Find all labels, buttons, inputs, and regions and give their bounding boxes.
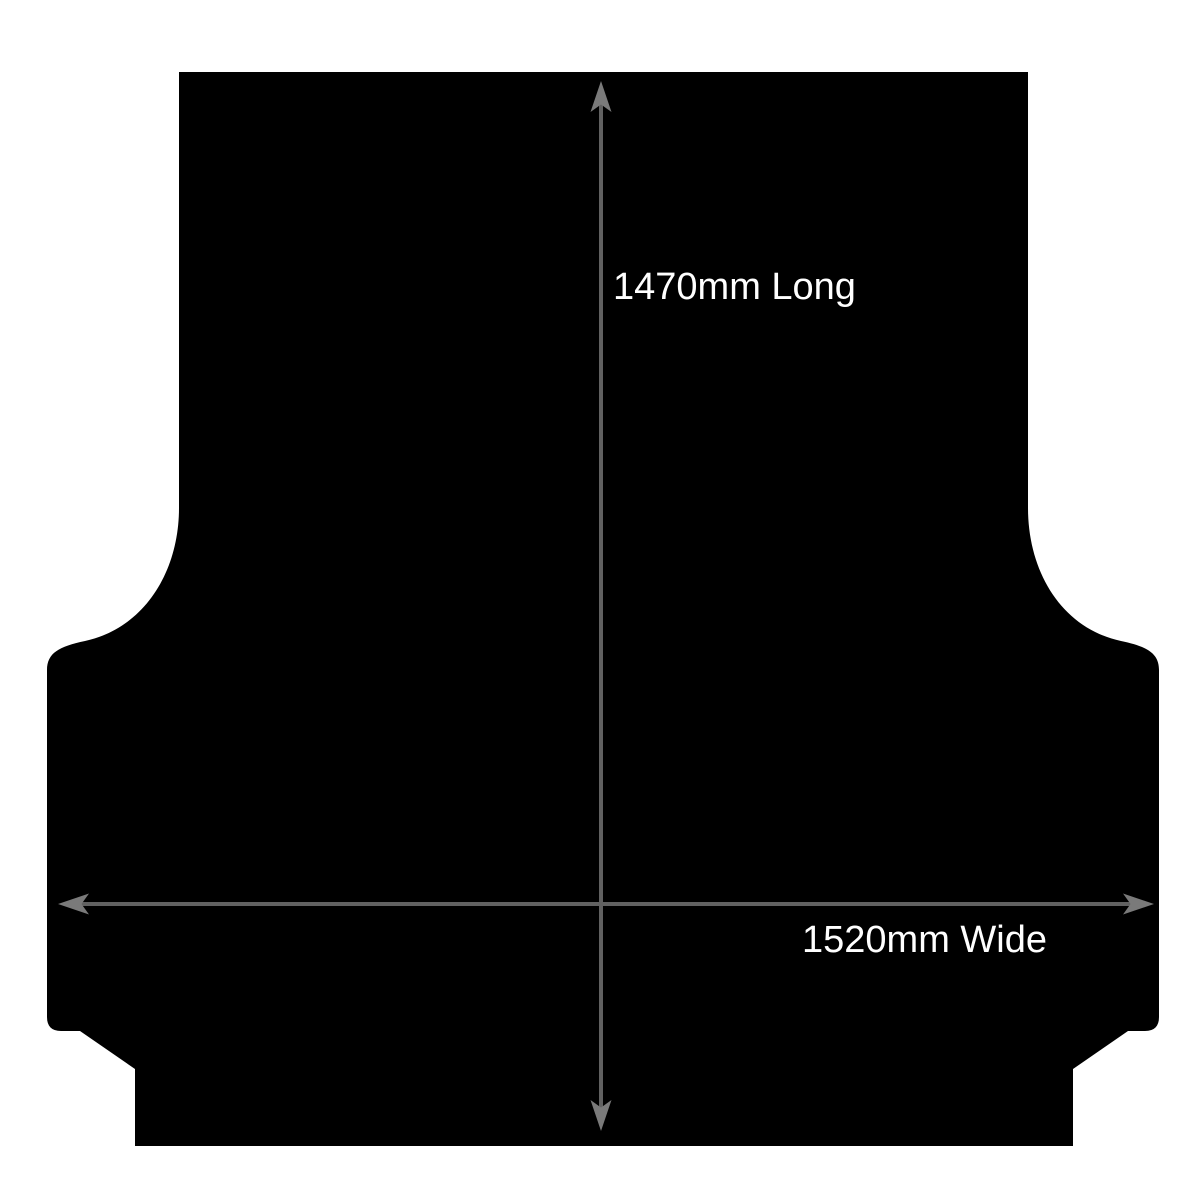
length-label: 1470mm Long: [613, 266, 856, 308]
mat-dimension-diagram: 1470mm Long 1520mm Wide: [0, 0, 1200, 1200]
width-label: 1520mm Wide: [802, 919, 1047, 961]
mat-diagram-canvas: 1470mm Long 1520mm Wide: [0, 0, 1200, 1200]
